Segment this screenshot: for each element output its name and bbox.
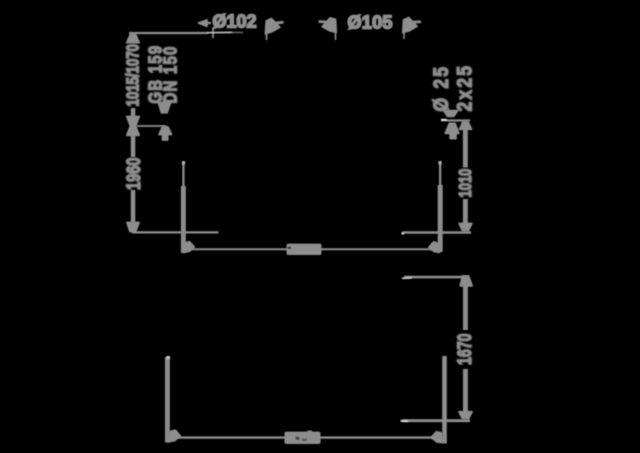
svg-text:2x25: 2x25 — [454, 64, 477, 112]
svg-text:Ø 25: Ø 25 — [431, 65, 454, 112]
svg-text:Ø105: Ø105 — [348, 13, 393, 33]
svg-text:Ø102: Ø102 — [213, 12, 257, 32]
svg-text:1670: 1670 — [454, 333, 476, 365]
svg-text:1015/1070: 1015/1070 — [124, 44, 143, 106]
svg-text:1010: 1010 — [456, 169, 475, 198]
svg-text:DN 150: DN 150 — [160, 45, 181, 103]
svg-text:1960: 1960 — [123, 158, 144, 190]
